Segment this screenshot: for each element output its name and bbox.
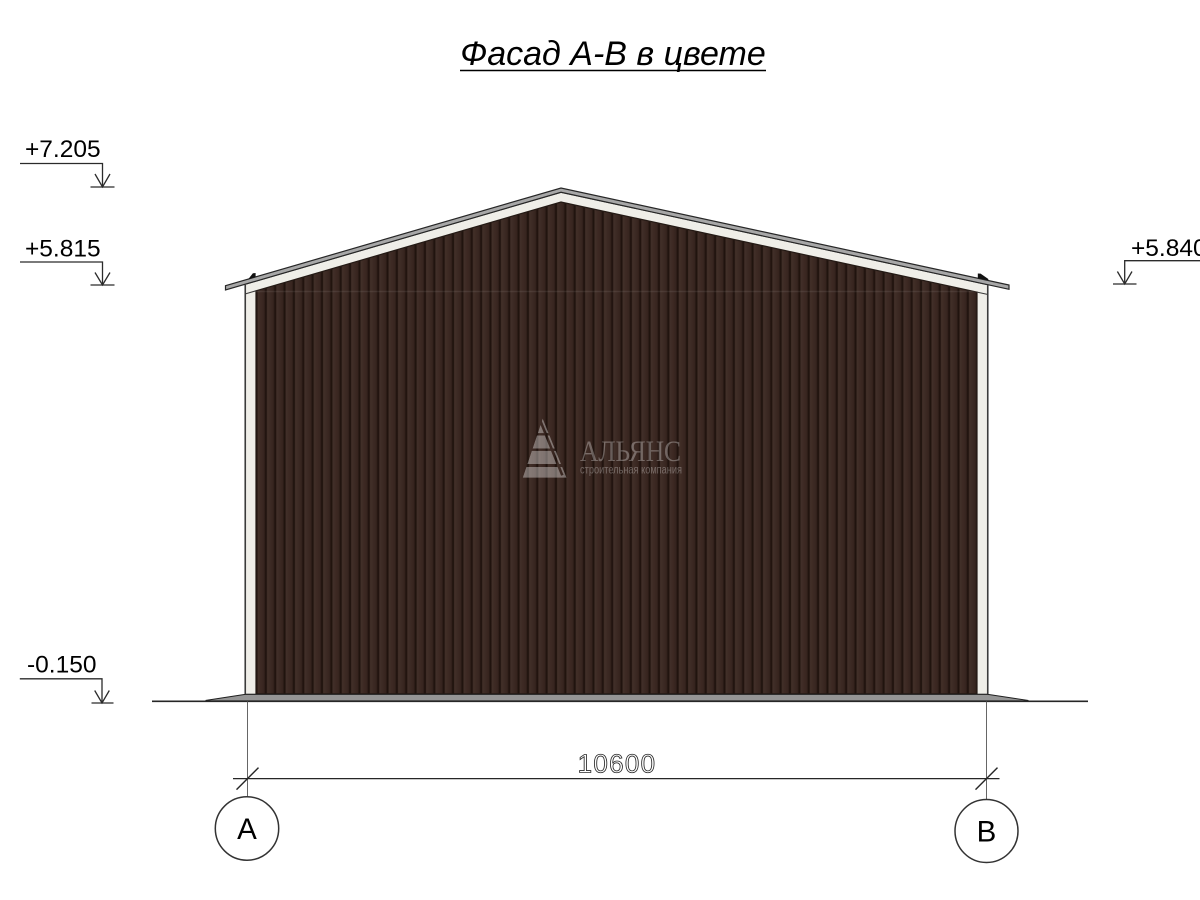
- svg-text:Фасад А-В в цвете: Фасад А-В в цвете: [460, 35, 766, 73]
- svg-text:-0.150: -0.150: [27, 652, 96, 679]
- svg-text:В: В: [977, 816, 997, 849]
- svg-text:АЛЬЯНС: АЛЬЯНС: [580, 435, 681, 468]
- svg-text:10600: 10600: [578, 749, 657, 779]
- svg-text:+7.205: +7.205: [25, 136, 101, 163]
- svg-text:+5.840: +5.840: [1131, 235, 1200, 262]
- svg-text:строительная компания: строительная компания: [580, 465, 682, 477]
- svg-text:+5.815: +5.815: [25, 236, 101, 263]
- svg-text:А: А: [237, 813, 257, 846]
